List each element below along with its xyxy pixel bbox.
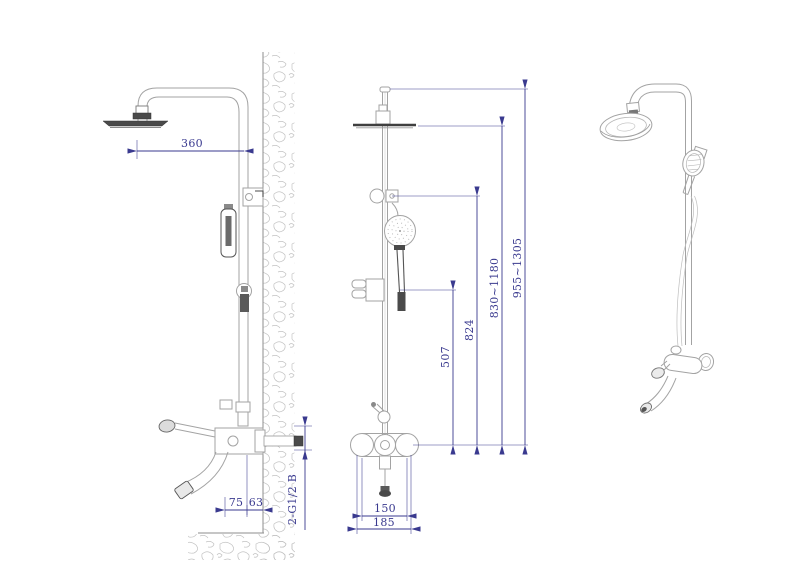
dim-holder-height: 507: [439, 290, 453, 445]
holder-clip: [241, 286, 248, 292]
technical-drawing-page: 360 75 63 2-G1/2 B: [0, 0, 791, 564]
technical-drawing-canvas: 360 75 63 2-G1/2 B: [0, 0, 791, 564]
dim-outlet-height-label: 824: [463, 319, 476, 341]
dim-valve-centres-label: 150: [374, 502, 396, 515]
dim-arm-reach: 360: [137, 137, 244, 159]
dim-spout-reach-label: 75: [229, 496, 244, 509]
head-disc-edge: [103, 121, 168, 126]
hose-outlet-bracket: [370, 189, 398, 216]
column-base-fittings: [220, 400, 250, 426]
handle-knob: [158, 419, 176, 434]
head-disc-3d: [599, 110, 654, 143]
dim-head-height-range: 830~1180: [488, 126, 502, 445]
head-hub: [133, 113, 151, 119]
lower-outlet: [380, 456, 391, 469]
floor-section: [188, 533, 295, 560]
perspective-view: [599, 84, 715, 415]
cradle-ring: [370, 189, 384, 203]
handle-neck: [394, 245, 405, 250]
rain-shower-head-perspective: [599, 102, 654, 143]
rain-shower-head-front: [353, 105, 416, 128]
holder-grip: [240, 294, 249, 312]
spout-outer-line: [184, 452, 216, 483]
floor-hatch: [188, 534, 295, 560]
dim-inlet-label: 2-G1/2 B: [286, 474, 299, 525]
diverter-knob: [220, 400, 232, 409]
spout-aerator: [174, 480, 194, 499]
dim-spout-wall-label: 63: [249, 496, 264, 509]
dim-head-height-label: 830~1180: [488, 258, 501, 319]
handle-knob-3d: [650, 366, 666, 380]
dim-holder-height-label: 507: [439, 346, 452, 368]
spout-inner-line: [191, 452, 228, 494]
valve-center: [375, 435, 396, 456]
dim-outlet-height: 824: [463, 196, 477, 445]
hand-shower-side: [221, 204, 236, 257]
holder-block: [366, 279, 384, 301]
mixer-valve-perspective: [639, 346, 715, 415]
rain-shower-head-side: [103, 106, 168, 128]
dim-valve-width-label: 185: [373, 516, 395, 529]
hand-shower-face: [226, 216, 232, 246]
dim-arm-reach-label: 360: [181, 137, 203, 150]
height-extension-lines: [390, 89, 528, 445]
dim-overall-height-range: 955~1305: [511, 89, 525, 445]
front-view: 507 824 830~1180 955~1305 150 185: [351, 87, 529, 534]
wall-bracket-side: [243, 188, 263, 206]
wall-flange: [255, 430, 265, 452]
handle-right-line: [403, 250, 405, 292]
dim-overall-height-label: 955~1305: [511, 238, 524, 299]
spout-outer-3d: [646, 376, 668, 404]
head-connector-front: [376, 111, 390, 124]
nozzle-center: [399, 230, 401, 232]
base-fitting-lower: [238, 412, 248, 426]
inlet-pipe: [264, 436, 296, 446]
dim-spout-offsets: 75 63: [225, 455, 263, 517]
holder-knob-upper: [352, 280, 366, 288]
spout-inner-3d: [651, 378, 676, 411]
side-view: 360 75 63 2-G1/2 B: [103, 52, 312, 560]
hose-link: [392, 203, 398, 216]
hand-shower-handle-3d: [683, 175, 695, 195]
handle-left-line: [397, 250, 400, 292]
diverter-3d: [671, 346, 681, 354]
pipe-top-cap: [380, 87, 390, 92]
holder-knob-lower: [352, 290, 366, 298]
hose-line-2: [681, 196, 698, 346]
inlet-thread-end: [294, 436, 303, 446]
lever-tip: [371, 402, 376, 407]
hand-shower-front: [385, 216, 416, 312]
spout-tip-ellipse: [379, 490, 391, 497]
base-fitting-upper: [236, 402, 250, 412]
mixer-valve-front: [351, 402, 419, 497]
slider-holder-front: [352, 279, 384, 301]
left-union: [351, 434, 374, 457]
handle-end: [398, 292, 406, 311]
valve-body-3d: [663, 353, 703, 374]
